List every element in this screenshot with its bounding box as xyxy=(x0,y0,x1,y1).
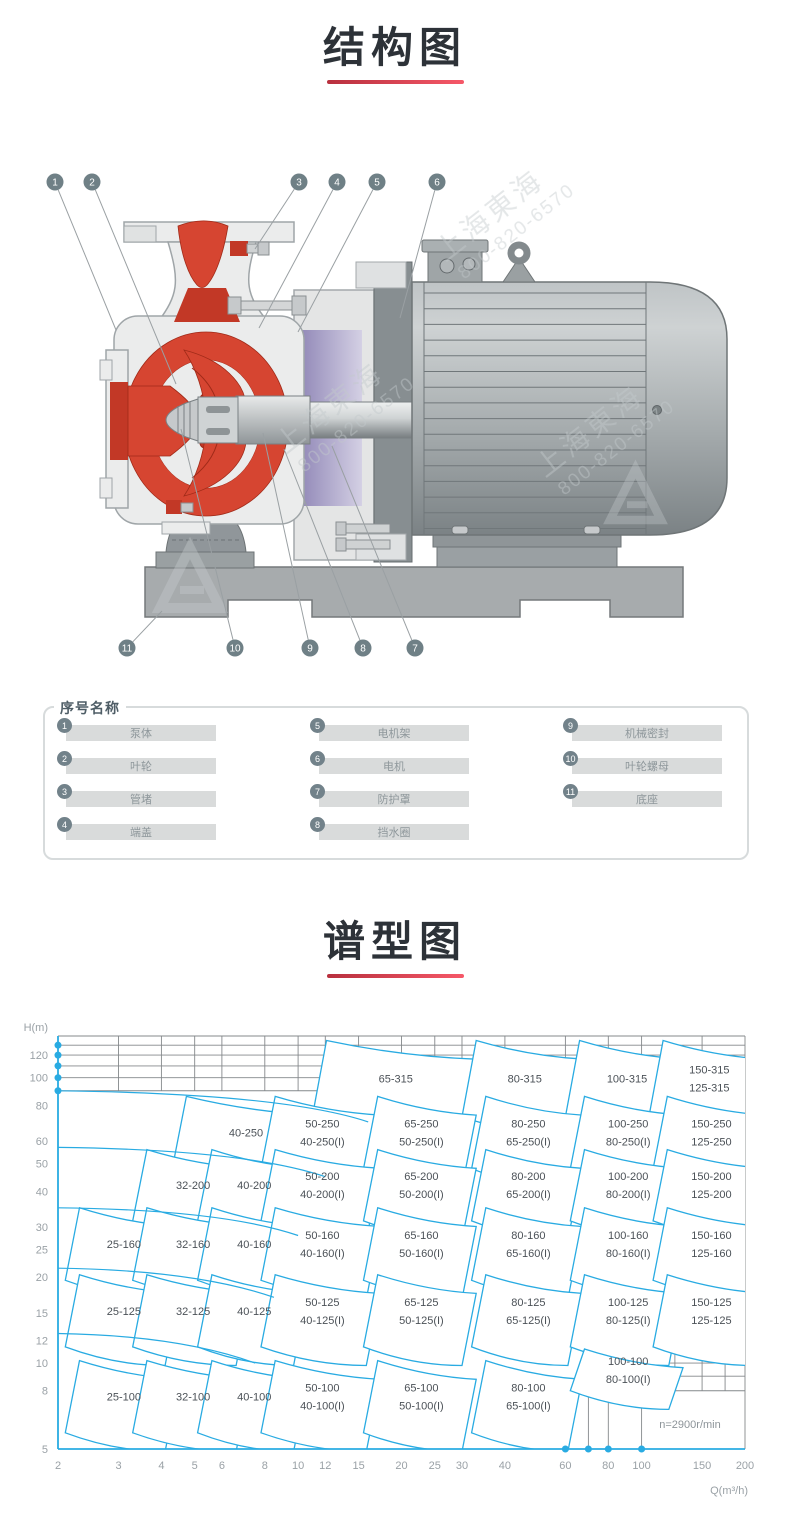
legend-item-label: 挡水圈 xyxy=(319,824,469,840)
x-tick-8: 8 xyxy=(262,1460,268,1472)
key-slot-top xyxy=(206,406,230,413)
callout-number-7: 7 xyxy=(412,644,418,655)
y-tick-30: 30 xyxy=(36,1222,48,1234)
legend-item-label: 管堵 xyxy=(66,791,216,807)
x-tick-15: 15 xyxy=(352,1460,364,1472)
y-tick-12: 12 xyxy=(36,1336,48,1348)
region-label: 25-160 xyxy=(107,1239,141,1251)
region-label: 80-200(I) xyxy=(606,1189,651,1201)
region-label: 150-160 xyxy=(691,1230,731,1242)
region-label: 40-100 xyxy=(237,1392,271,1404)
legend-item-6: 6电机 xyxy=(310,750,563,783)
legend-item-label: 叶轮螺母 xyxy=(572,758,722,774)
speed-annotation: n=2900r/min xyxy=(659,1419,720,1431)
callout-number-5: 5 xyxy=(374,178,380,189)
legend-item-2: 2叶轮 xyxy=(57,750,310,783)
region-label: 125-250 xyxy=(691,1137,731,1149)
legend-item-number: 6 xyxy=(310,751,325,766)
region-label: 125-125 xyxy=(691,1315,731,1327)
region-label: 65-250(I) xyxy=(506,1137,551,1149)
region-label: 40-125(I) xyxy=(300,1315,345,1327)
callout-number-1: 1 xyxy=(52,178,58,189)
legend-grid: 1泵体2叶轮3管堵4端盖5电机架6电机7防护罩8挡水圈9机械密封10叶轮螺母11… xyxy=(57,717,790,849)
x-tick-5: 5 xyxy=(192,1460,198,1472)
axis-dot-x-80 xyxy=(605,1446,612,1453)
y-tick-50: 50 xyxy=(36,1159,48,1171)
callout-number-11: 11 xyxy=(122,644,133,655)
region-label: 100-125 xyxy=(608,1297,648,1309)
region-label: 65-160 xyxy=(404,1230,438,1242)
x-tick-60: 60 xyxy=(559,1460,571,1472)
region-label: 65-200(I) xyxy=(506,1189,551,1201)
axis-dot-y-110 xyxy=(55,1062,62,1069)
region-label: 150-125 xyxy=(691,1297,731,1309)
legend-item-3: 3管堵 xyxy=(57,783,310,816)
motor-foot-pedestal xyxy=(437,547,617,567)
x-tick-25: 25 xyxy=(429,1460,441,1472)
x-axis-title: Q(m³/h) xyxy=(710,1485,748,1497)
region-label: 40-160(I) xyxy=(300,1248,345,1260)
adapter-lug-top xyxy=(356,262,406,288)
region-label: 150-315 xyxy=(689,1065,729,1077)
y-tick-60: 60 xyxy=(36,1136,48,1148)
region-label: 40-200(I) xyxy=(300,1189,345,1201)
selection-chart-title-underline xyxy=(327,974,464,978)
region-label: 65-100(I) xyxy=(506,1401,551,1413)
selection-chart-title: 谱型图 xyxy=(0,908,790,969)
x-tick-3: 3 xyxy=(115,1460,121,1472)
legend-item-label: 电机 xyxy=(319,758,469,774)
y-axis-title: H(m) xyxy=(24,1022,48,1034)
region-label: 150-200 xyxy=(691,1171,731,1183)
x-tick-80: 80 xyxy=(602,1460,614,1472)
legend-item-1: 1泵体 xyxy=(57,717,310,750)
legend-item-number: 4 xyxy=(57,817,72,832)
y-tick-25: 25 xyxy=(36,1245,48,1257)
axis-dot-x-100 xyxy=(638,1446,645,1453)
callout-number-6: 6 xyxy=(434,178,440,189)
callout-number-10: 10 xyxy=(229,644,241,655)
region-label: 80-100(I) xyxy=(606,1374,651,1386)
region-label: 32-100 xyxy=(176,1392,210,1404)
legend-item-number: 5 xyxy=(310,718,325,733)
legend-item-number: 9 xyxy=(563,718,578,733)
legend-item-number: 1 xyxy=(57,718,72,733)
y-tick-5: 5 xyxy=(42,1444,48,1456)
casing-plug-hex xyxy=(258,242,269,255)
region-label: 50-125(I) xyxy=(399,1315,444,1327)
structure-title: 结构图 xyxy=(0,14,790,75)
region-label: 65-160(I) xyxy=(506,1248,551,1260)
x-tick-4: 4 xyxy=(158,1460,164,1472)
region-label: 32-125 xyxy=(176,1306,210,1318)
region-label: 80-200 xyxy=(511,1171,545,1183)
region-label: 50-200 xyxy=(305,1171,339,1183)
drain-plug-seat xyxy=(166,500,182,514)
legend-item-number: 7 xyxy=(310,784,325,799)
legend-item-7: 7防护罩 xyxy=(310,783,563,816)
y-tick-120: 120 xyxy=(30,1050,48,1062)
x-tick-2: 2 xyxy=(55,1460,61,1472)
x-tick-200: 200 xyxy=(736,1460,754,1472)
region-label: 50-125 xyxy=(305,1297,339,1309)
callout-line-1 xyxy=(58,190,116,330)
axis-dot-y-130 xyxy=(55,1042,62,1049)
y-tick-40: 40 xyxy=(36,1186,48,1198)
bracket-bolt-1-head xyxy=(336,522,346,535)
discharge-flange-step xyxy=(124,226,156,242)
region-label: 50-200(I) xyxy=(399,1189,444,1201)
region-label: 50-160(I) xyxy=(399,1248,444,1260)
key-slot-bottom xyxy=(206,428,230,435)
legend-item-number: 8 xyxy=(310,817,325,832)
legend-item-5: 5电机架 xyxy=(310,717,563,750)
axis-dot-y-120 xyxy=(55,1052,62,1059)
y-tick-100: 100 xyxy=(30,1073,48,1085)
region-label: 80-250 xyxy=(511,1119,545,1131)
region-label: 100-160 xyxy=(608,1230,648,1242)
motor-foot xyxy=(433,535,621,547)
region-label: 65-125 xyxy=(404,1297,438,1309)
legend-item-11: 11底座 xyxy=(563,783,790,816)
bracket-bolt-2 xyxy=(344,540,390,549)
page: 结构图 xyxy=(0,0,790,1520)
x-tick-40: 40 xyxy=(499,1460,511,1472)
region-label: 40-100(I) xyxy=(300,1401,345,1413)
legend-item-9: 9机械密封 xyxy=(563,717,790,750)
region-label: 100-100 xyxy=(608,1356,648,1368)
region-label: 65-200 xyxy=(404,1171,438,1183)
region-label: 50-100(I) xyxy=(399,1401,444,1413)
region-label: 50-250(I) xyxy=(399,1137,444,1149)
bracket-stud xyxy=(240,301,294,310)
pump-structure-diagram: 上海東海800-820-6570上海東海800-820-6570上海東海800-… xyxy=(0,150,790,690)
legend-item-number: 2 xyxy=(57,751,72,766)
region-label: 40-250 xyxy=(229,1128,263,1140)
region-label: 100-250 xyxy=(608,1119,648,1131)
region-label: 65-315 xyxy=(379,1074,413,1086)
suction-inlet-red xyxy=(110,382,128,460)
callout-number-9: 9 xyxy=(307,644,313,655)
legend-item-label: 叶轮 xyxy=(66,758,216,774)
pump-pedestal-foot xyxy=(156,552,254,568)
region-label: 100-315 xyxy=(607,1074,647,1086)
region-label: 50-250 xyxy=(305,1119,339,1131)
axis-dot-y-100 xyxy=(55,1074,62,1081)
region-label: 125-160 xyxy=(691,1248,731,1260)
x-tick-30: 30 xyxy=(456,1460,468,1472)
y-tick-20: 20 xyxy=(36,1272,48,1284)
region-label: 65-250 xyxy=(404,1119,438,1131)
region-label: 125-315 xyxy=(689,1083,729,1095)
x-tick-100: 100 xyxy=(632,1460,650,1472)
x-tick-10: 10 xyxy=(292,1460,304,1472)
x-tick-150: 150 xyxy=(693,1460,711,1472)
axis-dot-x-60 xyxy=(562,1446,569,1453)
region-label: 80-160(I) xyxy=(606,1248,651,1260)
region-label: 65-125(I) xyxy=(506,1315,551,1327)
suction-flange-tab-bottom xyxy=(100,478,112,498)
legend-item-label: 机械密封 xyxy=(572,725,722,741)
bracket-bolt-2-head xyxy=(336,538,346,551)
foot-bolt-1 xyxy=(452,526,468,534)
region-label: 32-200 xyxy=(176,1180,210,1192)
bracket-stud-head xyxy=(228,297,241,314)
callout-number-8: 8 xyxy=(360,644,366,655)
y-tick-15: 15 xyxy=(36,1308,48,1320)
bracket-stud-nut xyxy=(292,296,306,315)
region-label: 32-160 xyxy=(176,1239,210,1251)
drain-plug-hex xyxy=(181,503,193,512)
region-label: 100-200 xyxy=(608,1171,648,1183)
region-label: 80-250(I) xyxy=(606,1137,651,1149)
region-label: 80-125(I) xyxy=(606,1315,651,1327)
legend-item-label: 电机架 xyxy=(319,725,469,741)
legend-item-4: 4端盖 xyxy=(57,816,310,849)
shaft-key-section xyxy=(198,397,238,443)
legend-item-8: 8挡水圈 xyxy=(310,816,563,849)
legend-item-label: 端盖 xyxy=(66,824,216,840)
region-label: 80-160 xyxy=(511,1230,545,1242)
casing-plug-seat xyxy=(230,241,248,256)
region-label: 80-125 xyxy=(511,1297,545,1309)
region-label: 150-250 xyxy=(691,1119,731,1131)
legend-item-label: 泵体 xyxy=(66,725,216,741)
legend-item-number: 3 xyxy=(57,784,72,799)
axis-dot-y-90 xyxy=(55,1087,62,1094)
callout-number-2: 2 xyxy=(89,178,95,189)
foot-bolt-2 xyxy=(584,526,600,534)
callout-number-3: 3 xyxy=(296,178,302,189)
x-tick-6: 6 xyxy=(219,1460,225,1472)
pump-selection-chart: 65-31580-315100-315150-315125-31540-2505… xyxy=(0,1000,790,1520)
region-label: 40-160 xyxy=(237,1239,271,1251)
axis-dot-x-70 xyxy=(585,1446,592,1453)
region-label: 65-100 xyxy=(404,1383,438,1395)
suction-flange-tab-top xyxy=(100,360,112,380)
region-label: 50-100 xyxy=(305,1383,339,1395)
y-tick-80: 80 xyxy=(36,1100,48,1112)
legend-title: 序号名称 xyxy=(54,698,126,718)
legend-item-10: 10叶轮螺母 xyxy=(563,750,790,783)
region-label: 40-125 xyxy=(237,1306,271,1318)
legend-item-label: 防护罩 xyxy=(319,791,469,807)
legend-item-number: 10 xyxy=(563,751,578,766)
region-label: 80-315 xyxy=(508,1074,542,1086)
region-label: 40-250(I) xyxy=(300,1137,345,1149)
region-label: 40-200 xyxy=(237,1180,271,1192)
legend-item-number: 11 xyxy=(563,784,578,799)
x-tick-20: 20 xyxy=(395,1460,407,1472)
structure-title-underline xyxy=(327,80,464,84)
region-label: 25-125 xyxy=(107,1306,141,1318)
region-label: 125-200 xyxy=(691,1189,731,1201)
region-label: 80-100 xyxy=(511,1383,545,1395)
y-tick-8: 8 xyxy=(42,1386,48,1398)
x-tick-12: 12 xyxy=(319,1460,331,1472)
casing-bottom-boss xyxy=(162,522,210,534)
region-label: 25-100 xyxy=(107,1392,141,1404)
region-label: 50-160 xyxy=(305,1230,339,1242)
legend-item-label: 底座 xyxy=(572,791,722,807)
callout-number-4: 4 xyxy=(334,178,340,189)
y-tick-10: 10 xyxy=(36,1358,48,1370)
